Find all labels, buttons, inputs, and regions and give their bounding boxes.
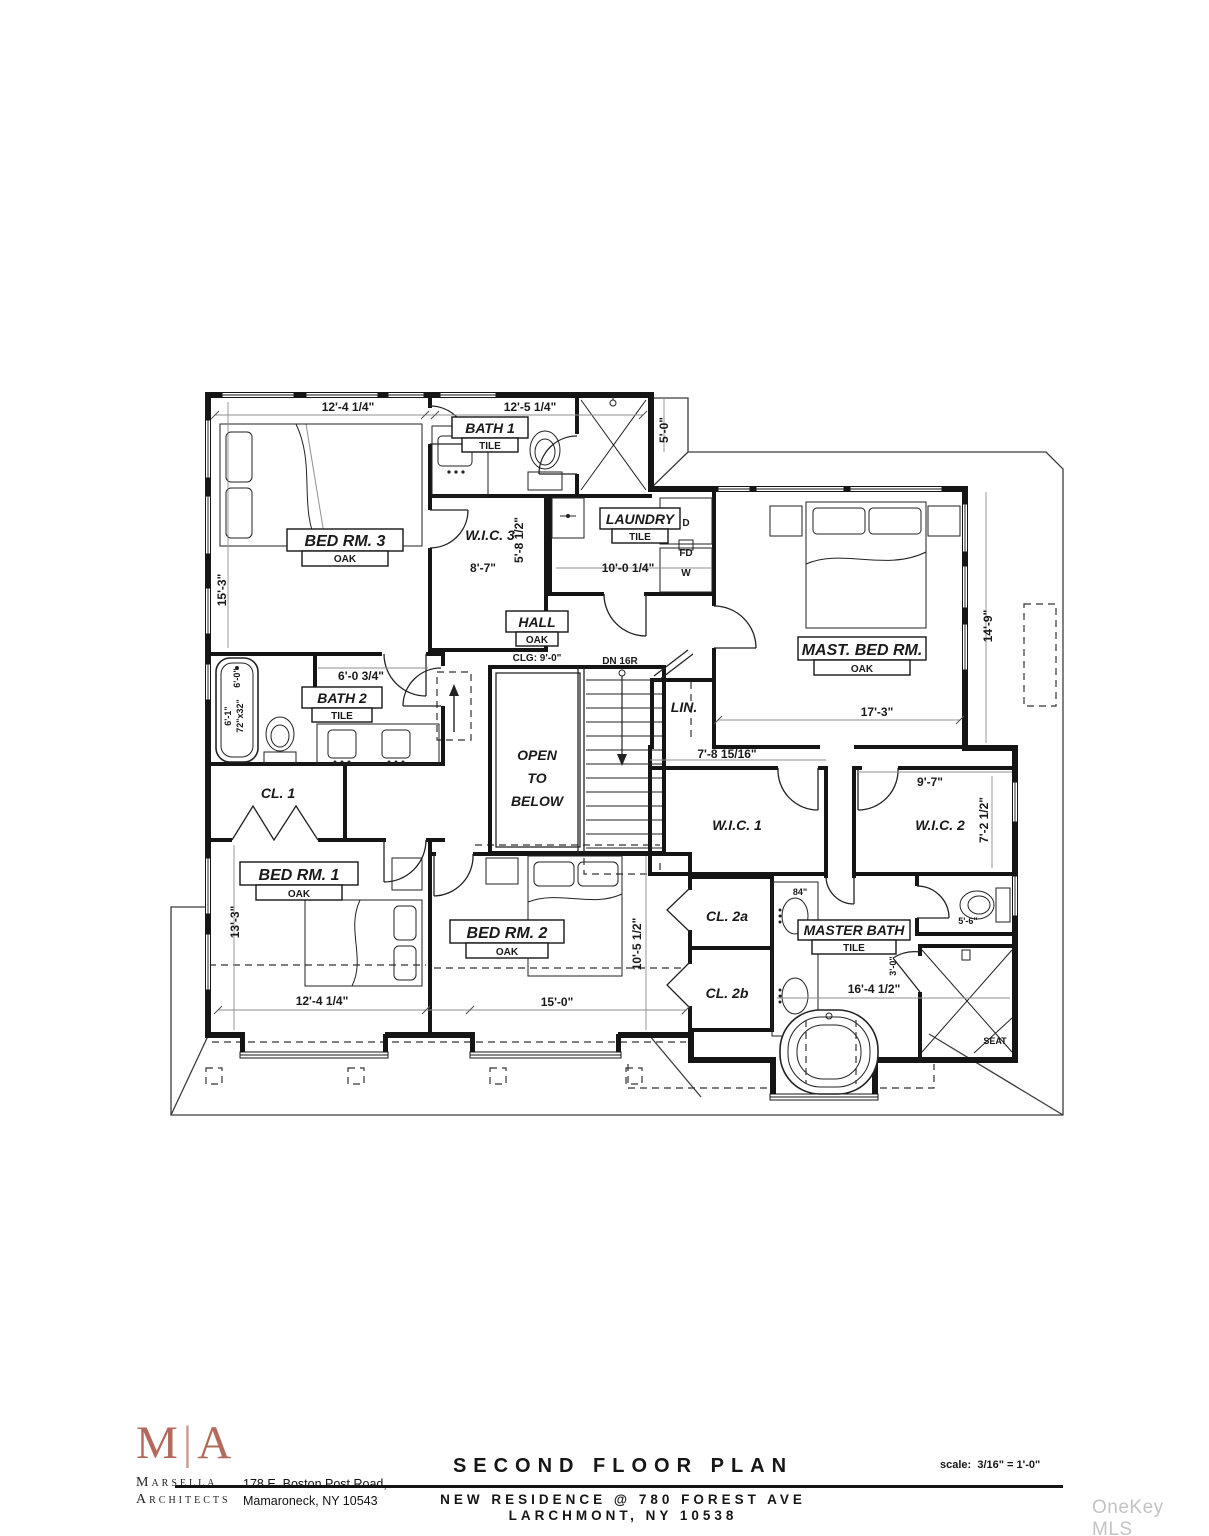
bed2-name: BED RM. 2 xyxy=(467,925,548,942)
dim-bath2-width: 6'-0 3/4" xyxy=(338,669,384,683)
laundry-door xyxy=(604,594,646,636)
project-line1: NEW RESIDENCE @ 780 FOREST AVE xyxy=(398,1492,848,1507)
cl1-bifold-doors xyxy=(232,806,318,840)
room-label-bed3: BED RM. 3 OAK xyxy=(287,529,403,566)
dim-wic2-width: 9'-7" xyxy=(917,775,943,789)
cl2a-doors xyxy=(667,888,690,932)
bath2-floor: TILE xyxy=(331,711,353,722)
wic3-name: W.I.C. 3 xyxy=(465,527,515,543)
firm-address: 178 E. Boston Post Road, Mamaroneck, NY … xyxy=(243,1476,387,1510)
open-line2: TO xyxy=(527,770,546,786)
shower-seat-label: SEAT xyxy=(983,1036,1007,1046)
dim-masterbath-width: 16'-4 1/2" xyxy=(848,982,901,996)
bed1-dresser xyxy=(392,858,422,890)
laundry-name: LAUNDRY xyxy=(606,511,676,527)
dim-bed1-width: 12'-4 1/4" xyxy=(296,994,349,1008)
dim-bed2-height: 10'-5 1/2" xyxy=(630,918,644,971)
masterbath-floor: TILE xyxy=(843,943,865,954)
dim-wic1-width: 7'-8 15/16" xyxy=(697,747,756,761)
dim-tub2-size: 72"x32" xyxy=(235,699,245,733)
room-label-laundry: LAUNDRY TILE xyxy=(600,508,680,543)
bed1-floor: OAK xyxy=(288,889,311,900)
dashed-lines xyxy=(206,604,1056,1088)
stair-down-arrow xyxy=(617,670,627,766)
bed1-bed xyxy=(305,900,422,986)
room-label-hall: HALL OAK CLG: 9'-0" xyxy=(506,611,568,664)
masterbath-door xyxy=(826,876,854,904)
dim-bed3-width: 12'-4 1/4" xyxy=(322,400,375,414)
dim-bath1-width: 12'-5 1/4" xyxy=(504,400,557,414)
drawing-title: SECOND FLOOR PLAN xyxy=(398,1455,848,1478)
room-label-masterbath: MASTER BATH TILE xyxy=(798,920,910,954)
floor-drain-label: FD xyxy=(679,548,692,559)
dim-wic3-height: 5'-8 1/2" xyxy=(512,517,526,563)
bath2-name: BATH 2 xyxy=(317,690,367,706)
hall-floor: OAK xyxy=(526,635,549,646)
room-label-bed2: BED RM. 2 OAK xyxy=(450,920,564,958)
bed1-door xyxy=(384,840,426,882)
stair-direction-label: DN 16R xyxy=(602,656,638,667)
bed2-floor: OAK xyxy=(496,947,519,958)
cl2b-name: CL. 2b xyxy=(706,985,749,1001)
firm-name-line2: Architects xyxy=(136,1491,231,1508)
bed3-floor: OAK xyxy=(334,554,357,565)
bath2-vanity xyxy=(317,724,439,764)
dim-wc-width: 5'-6" xyxy=(958,916,977,926)
dim-bed1-height: 13'-3" xyxy=(228,906,242,939)
bed1-name: BED RM. 1 xyxy=(259,867,340,884)
dim-vanity-width: 84" xyxy=(793,887,807,897)
wic2-door xyxy=(858,768,898,810)
master-nightstand-right xyxy=(928,506,960,536)
room-label-master: MAST. BED RM. OAK xyxy=(798,637,926,675)
dim-bump-height: 5'-0" xyxy=(657,417,671,443)
wic2-name: W.I.C. 2 xyxy=(915,817,965,833)
wc-door xyxy=(917,886,949,918)
room-label-bed1: BED RM. 1 OAK xyxy=(240,862,358,900)
title-rule xyxy=(175,1485,1063,1488)
logo-m: M xyxy=(136,1417,179,1469)
cl1-name: CL. 1 xyxy=(261,785,295,801)
dim-bath2-height: 6'-0" xyxy=(232,668,242,687)
cl2a-name: CL. 2a xyxy=(706,908,748,924)
bath1-toilet xyxy=(528,431,562,490)
washer-label: W xyxy=(681,568,691,579)
floor-plan-drawing: BED RM. 3 OAK BATH 1 TILE W.I.C. 3 LAUND… xyxy=(0,0,1209,1536)
wic1-name: W.I.C. 1 xyxy=(712,817,762,833)
room-label-bath2: BATH 2 TILE xyxy=(302,687,382,722)
open-line1: OPEN xyxy=(517,747,558,763)
master-bed xyxy=(806,502,926,628)
master-door xyxy=(714,606,756,648)
dim-wic3-width: 8'-7" xyxy=(470,561,496,575)
dim-bed2-width: 15'-0" xyxy=(541,995,574,1009)
shower1-door xyxy=(539,436,577,474)
dim-shower-door: 3'-0" xyxy=(888,956,898,975)
freestanding-tub xyxy=(780,1010,878,1094)
watermark: OneKey MLS xyxy=(1092,1497,1209,1536)
hall-ceiling-note: CLG: 9'-0" xyxy=(513,653,562,664)
wic3-door xyxy=(430,510,468,548)
room-labels: BED RM. 3 OAK BATH 1 TILE W.I.C. 3 LAUND… xyxy=(240,417,965,1001)
lin-name: LIN. xyxy=(671,699,697,715)
logo-divider: | xyxy=(179,1417,197,1469)
cl2b-doors xyxy=(667,962,690,1008)
dim-laundry-width: 10'-0 1/4" xyxy=(602,561,655,575)
bath1-floor: TILE xyxy=(479,441,501,452)
dim-bed3-height: 15'-3" xyxy=(215,574,229,607)
firm-name-line1: Marsella xyxy=(136,1474,231,1491)
room-label-bath1: BATH 1 TILE xyxy=(452,417,528,452)
scale-note: scale: 3/16" = 1'-0" xyxy=(940,1459,1070,1471)
dim-master-width: 17'-3" xyxy=(861,705,894,719)
open-line3: BELOW xyxy=(511,793,565,809)
bath1-name: BATH 1 xyxy=(465,420,515,436)
wic1-door xyxy=(778,768,818,810)
laundry-sink xyxy=(552,498,584,538)
firm-name: Marsella Architects xyxy=(136,1474,231,1508)
bath2-toilet xyxy=(264,717,296,763)
bath1-shower xyxy=(581,397,646,490)
laundry-floor: TILE xyxy=(629,532,651,543)
address-line2: Mamaroneck, NY 10543 xyxy=(243,1493,387,1510)
bed3-name: BED RM. 3 xyxy=(305,533,386,550)
master-name: MAST. BED RM. xyxy=(802,642,923,659)
architect-logo: M|A xyxy=(136,1416,232,1470)
master-nightstand-left xyxy=(770,506,802,536)
bed2-door xyxy=(434,854,473,896)
masterbath-name: MASTER BATH xyxy=(804,922,906,938)
bed2-dresser xyxy=(486,858,518,884)
dim-tub2-length: 6'-1" xyxy=(223,706,233,725)
dryer-label: D xyxy=(682,518,689,529)
scale-value: 3/16" = 1'-0" xyxy=(977,1459,1040,1471)
logo-a: A xyxy=(197,1417,232,1469)
bed3-bed xyxy=(220,424,422,546)
floor-plan-sheet: BED RM. 3 OAK BATH 1 TILE W.I.C. 3 LAUND… xyxy=(0,0,1209,1536)
dim-wic2-height: 7'-2 1/2" xyxy=(977,797,991,843)
bath2-door xyxy=(403,668,441,706)
hall-name: HALL xyxy=(518,614,555,630)
open-to-below-label: OPEN TO BELOW xyxy=(511,747,565,809)
scale-label: scale: xyxy=(940,1459,971,1471)
dim-master-height: 14'-9" xyxy=(981,610,995,643)
project-line2: LARCHMONT, NY 10538 xyxy=(398,1508,848,1523)
master-floor: OAK xyxy=(851,664,874,675)
